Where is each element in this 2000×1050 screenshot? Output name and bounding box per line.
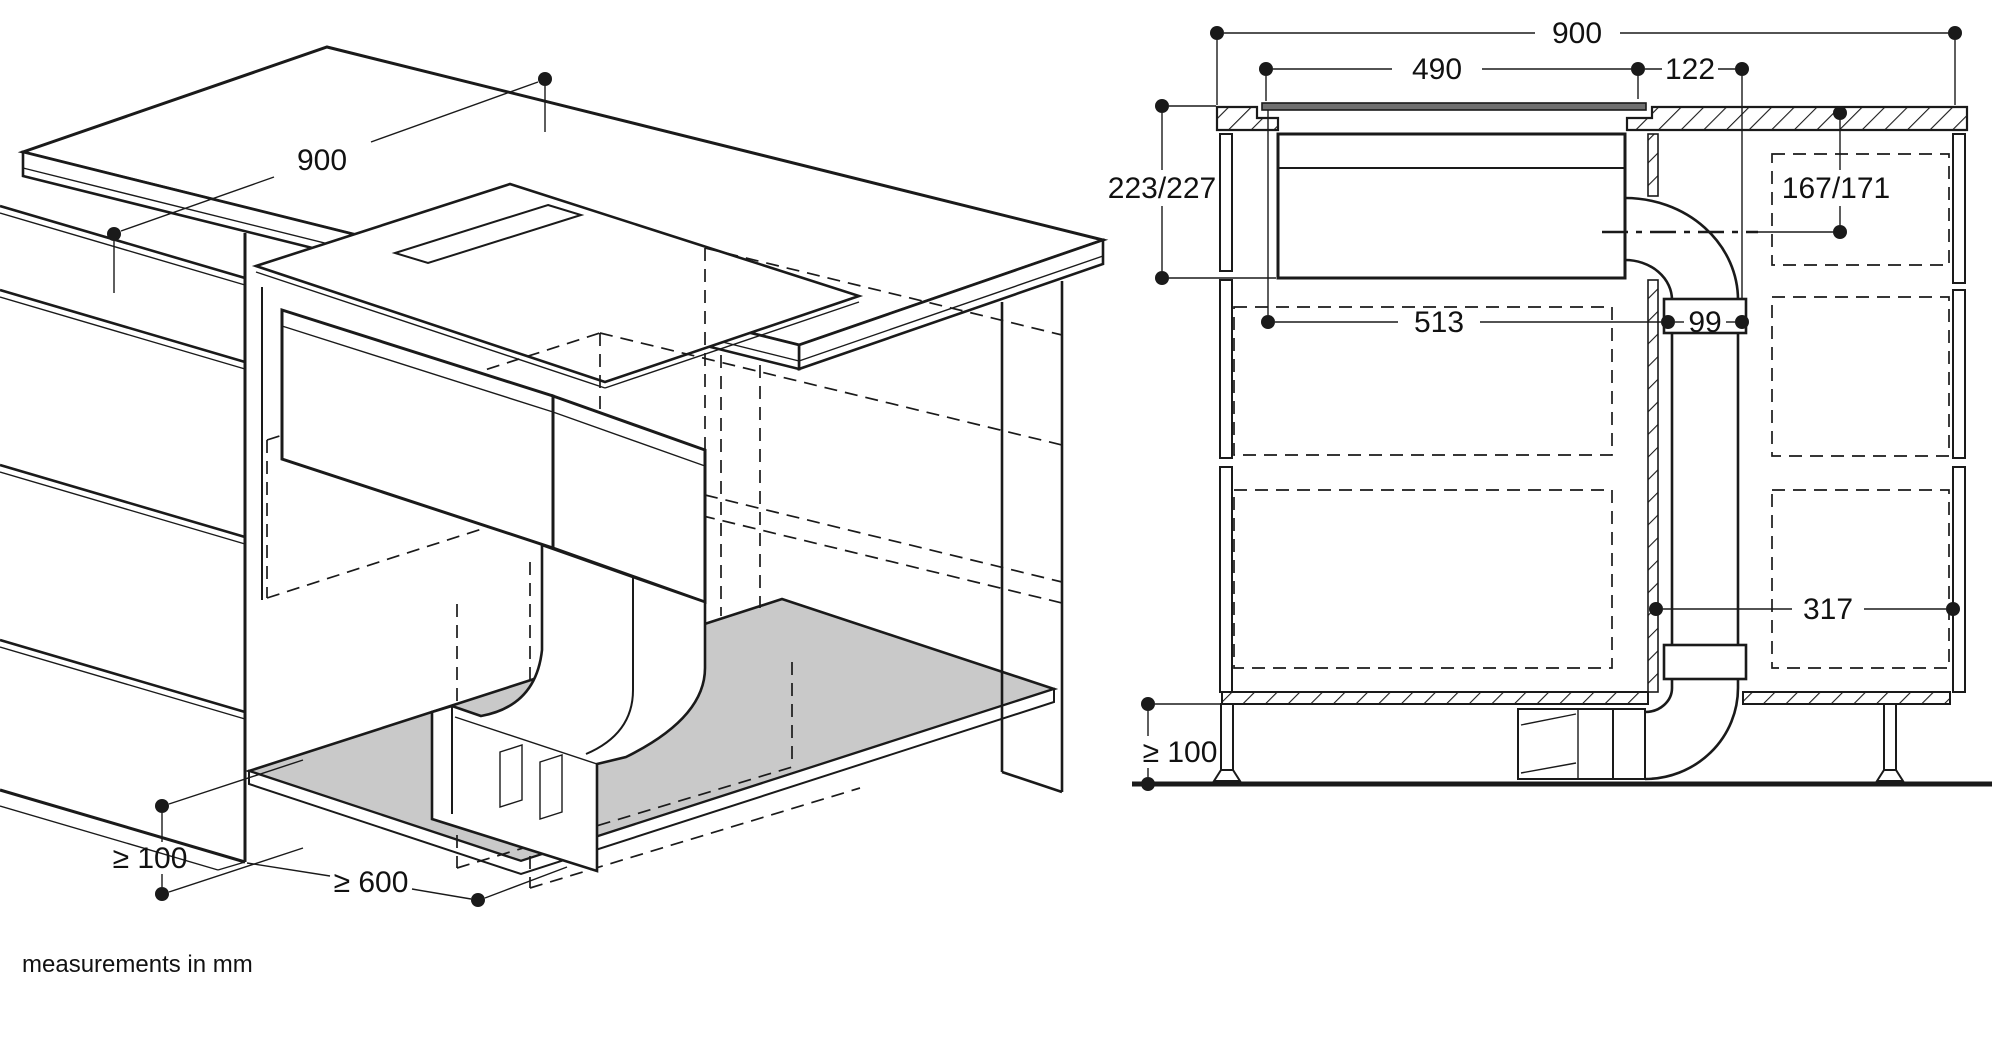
island-front-face bbox=[0, 206, 262, 870]
dim-label: ≥ 100 bbox=[1143, 736, 1218, 769]
dim-label: 490 bbox=[1412, 53, 1462, 86]
hob-section bbox=[1262, 103, 1646, 278]
dim-label: 900 bbox=[1552, 17, 1602, 50]
leg-right bbox=[1884, 704, 1896, 770]
leg-right-foot bbox=[1877, 770, 1903, 781]
dim-duct-offset-122: 122 bbox=[1645, 53, 1749, 298]
outlet-louver bbox=[540, 755, 562, 819]
diagram-canvas: 900 ≥ 100 ≥ 600 bbox=[0, 0, 2000, 1050]
dim-label: 99 bbox=[1688, 306, 1721, 339]
flat-outlet bbox=[1518, 709, 1613, 779]
cooktop-glass-section bbox=[1262, 103, 1646, 110]
dim-label: 317 bbox=[1803, 593, 1853, 626]
dim-label: ≥ 600 bbox=[334, 866, 409, 899]
elbow-end bbox=[1613, 709, 1645, 779]
dim-label: 122 bbox=[1665, 53, 1715, 86]
dim-cutout-490: 490 bbox=[1259, 53, 1645, 101]
isometric-view: 900 ≥ 100 ≥ 600 bbox=[0, 47, 1103, 907]
dim-duct-to-side-317: 317 bbox=[1649, 593, 1960, 626]
measurements-note: measurements in mm bbox=[22, 951, 253, 978]
installation-diagram-page: 900 ≥ 100 ≥ 600 bbox=[0, 0, 2000, 1050]
leg-left bbox=[1221, 704, 1233, 770]
dim-label: 167/171 bbox=[1782, 172, 1890, 205]
dim-label: 900 bbox=[297, 144, 347, 177]
hob-body-section bbox=[1278, 134, 1625, 278]
leg-left-foot bbox=[1214, 770, 1240, 781]
outlet-louver bbox=[500, 745, 522, 807]
cross-section-view: 900 490 122 223/227 bbox=[1108, 17, 1992, 791]
dim-label: ≥ 100 bbox=[113, 842, 188, 875]
dim-width-900: 900 bbox=[1210, 17, 1962, 105]
dim-floor-clearance-right: ≥ 100 bbox=[1141, 697, 1220, 791]
dim-label: 223/227 bbox=[1108, 172, 1216, 205]
dim-label: 513 bbox=[1414, 306, 1464, 339]
duct-connector-bottom bbox=[1664, 645, 1746, 679]
